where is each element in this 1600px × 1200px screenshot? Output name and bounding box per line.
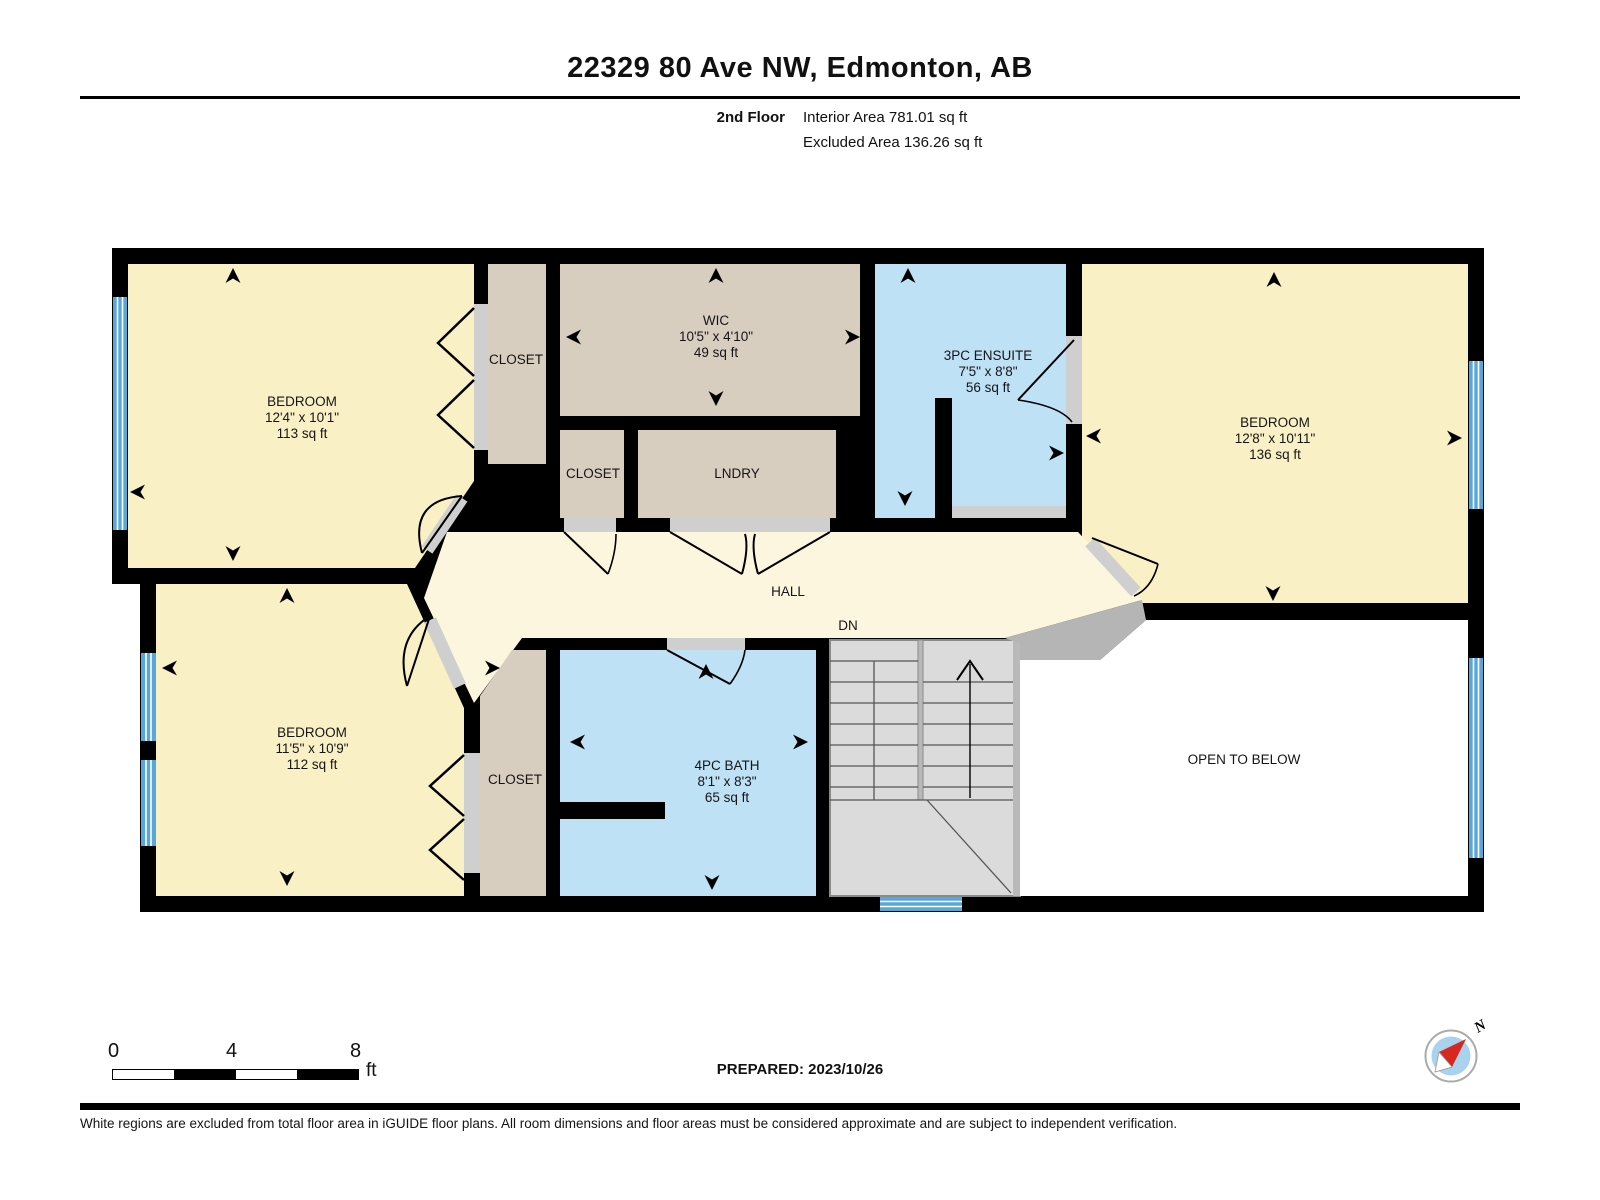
title-divider bbox=[80, 96, 1520, 99]
scale-bar-numbers: 0 4 8 bbox=[104, 1040, 374, 1064]
page-title: 22329 80 Ave NW, Edmonton, AB bbox=[0, 52, 1600, 85]
bath-area: 65 sq ft bbox=[705, 790, 750, 805]
bedroom-bl-dims: 11'5" x 10'9" bbox=[275, 741, 348, 756]
scale-segment bbox=[236, 1070, 297, 1079]
stairs-dn-label: DN bbox=[838, 618, 858, 633]
room-bath bbox=[560, 650, 816, 896]
interior-area-text: Interior Area 781.01 sq ft bbox=[803, 109, 967, 126]
scale-unit-label: ft bbox=[366, 1060, 377, 1082]
window bbox=[1469, 361, 1483, 509]
closet-mid-label: CLOSET bbox=[566, 466, 620, 481]
bedroom-right-dims: 12'8" x 10'11" bbox=[1235, 431, 1316, 446]
excluded-area-text: Excluded Area 136.26 sq ft bbox=[803, 134, 982, 151]
window bbox=[141, 653, 156, 741]
compass-north-label: N bbox=[1471, 1016, 1491, 1036]
ensuite-wall-stub bbox=[935, 398, 952, 518]
bath-wall-stub bbox=[560, 802, 665, 819]
scale-segment bbox=[297, 1070, 358, 1079]
ensuite-area: 56 sq ft bbox=[966, 380, 1011, 395]
closet-top-label: CLOSET bbox=[489, 352, 543, 367]
floor-plan-page: 22329 80 Ave NW, Edmonton, AB 2nd Floor … bbox=[0, 0, 1600, 1200]
compass-icon: N bbox=[1406, 1014, 1506, 1104]
disclaimer-text: White regions are excluded from total fl… bbox=[80, 1116, 1540, 1131]
bath-name: 4PC BATH bbox=[694, 758, 759, 773]
window bbox=[141, 760, 156, 846]
bedroom-bl-name: BEDROOM bbox=[277, 725, 347, 740]
bedroom-right-name: BEDROOM bbox=[1240, 415, 1310, 430]
bedroom-tl-area: 113 sq ft bbox=[277, 426, 328, 441]
bedroom-tl-dims: 12'4" x 10'1" bbox=[265, 410, 339, 425]
hall-label: HALL bbox=[771, 584, 805, 599]
floor-plan-drawing: BEDROOM 12'4" x 10'1" 113 sq ft CLOSET W… bbox=[112, 248, 1484, 912]
staircase bbox=[830, 640, 1020, 896]
floor-label: 2nd Floor bbox=[560, 109, 785, 126]
prepared-date: PREPARED: 2023/10/26 bbox=[650, 1061, 950, 1078]
wic-dims: 10'5" x 4'10" bbox=[679, 329, 753, 344]
scale-bar bbox=[112, 1069, 359, 1080]
wic-name: WIC bbox=[703, 313, 729, 328]
wic-area: 49 sq ft bbox=[694, 345, 739, 360]
room-bedroom-bottom-left bbox=[156, 584, 464, 896]
closet-bottom-label: CLOSET bbox=[488, 772, 542, 787]
ensuite-name: 3PC ENSUITE bbox=[944, 348, 1033, 363]
scale-tick-0: 0 bbox=[108, 1040, 119, 1063]
laundry-label: LNDRY bbox=[714, 466, 760, 481]
window bbox=[1469, 658, 1483, 858]
bath-dims: 8'1" x 8'3" bbox=[697, 774, 756, 789]
window bbox=[880, 897, 962, 911]
scale-segment bbox=[113, 1070, 174, 1079]
ensuite-threshold bbox=[952, 506, 1066, 518]
open-to-below-label: OPEN TO BELOW bbox=[1188, 752, 1301, 767]
bedroom-tl-name: BEDROOM bbox=[267, 394, 337, 409]
scale-segment bbox=[174, 1070, 235, 1079]
bedroom-right-area: 136 sq ft bbox=[1249, 447, 1301, 462]
ensuite-dims: 7'5" x 8'8" bbox=[958, 364, 1017, 379]
window bbox=[113, 297, 127, 530]
bedroom-bl-area: 112 sq ft bbox=[287, 757, 338, 772]
footer-divider bbox=[80, 1103, 1520, 1110]
scale-tick-4: 4 bbox=[226, 1040, 237, 1063]
scale-tick-8: 8 bbox=[350, 1040, 361, 1063]
